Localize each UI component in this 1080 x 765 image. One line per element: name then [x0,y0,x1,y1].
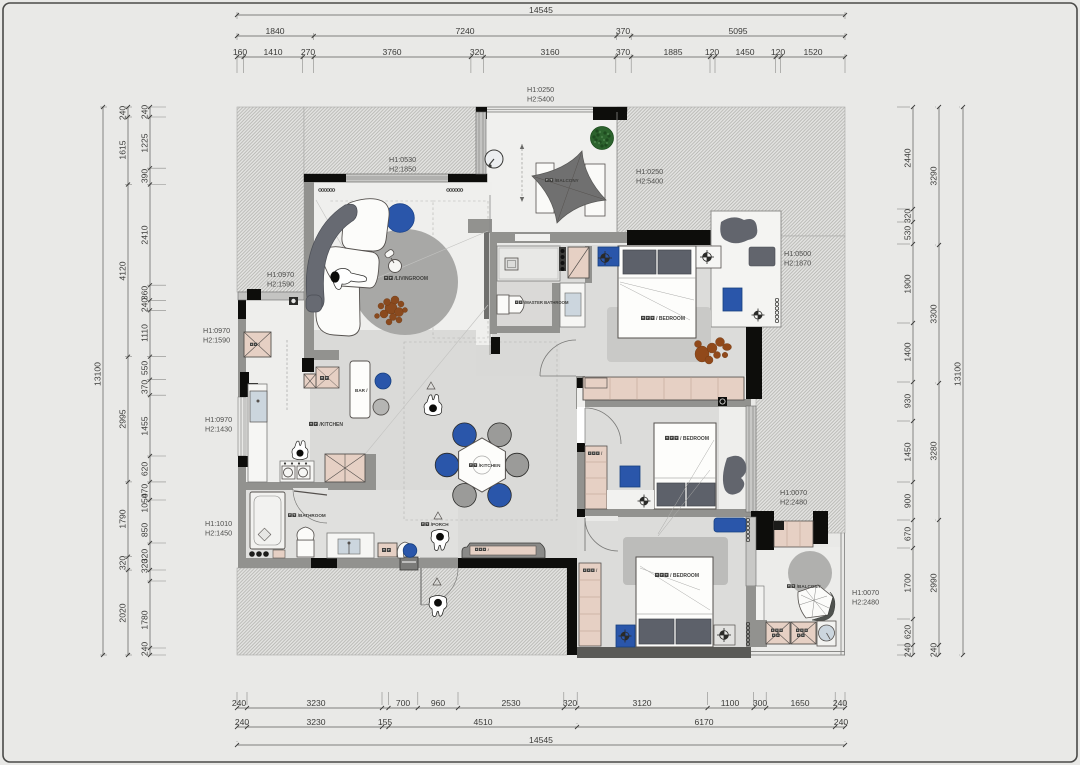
svg-text:1780: 1780 [140,610,150,629]
svg-text:4510: 4510 [473,717,492,727]
svg-text:H1:0970: H1:0970 [203,326,230,335]
svg-text:3230: 3230 [306,717,325,727]
svg-text:550: 550 [140,361,150,376]
svg-text:H2:5400: H2:5400 [527,95,554,104]
svg-text:320: 320 [903,209,913,224]
svg-text:14545: 14545 [529,5,553,15]
svg-text:14545: 14545 [529,735,553,745]
svg-text:155: 155 [378,717,393,727]
svg-text:H1:0250: H1:0250 [636,167,663,176]
svg-text:1790: 1790 [118,509,128,528]
svg-text:1885: 1885 [663,47,682,57]
svg-text:1650: 1650 [790,698,809,708]
svg-text:H2:1430: H2:1430 [205,425,232,434]
svg-text:320: 320 [118,556,128,571]
svg-text:620: 620 [903,625,913,640]
svg-text:H2:1450: H2:1450 [205,529,232,538]
svg-text:/ BEDROOM: / BEDROOM [670,573,699,579]
svg-text:1400: 1400 [903,342,913,361]
svg-text:930: 930 [903,394,913,409]
svg-text:620: 620 [140,462,150,477]
svg-text:1455: 1455 [140,416,150,435]
svg-text:2995: 2995 [118,409,128,428]
svg-text:320: 320 [563,698,578,708]
svg-text:H2:2480: H2:2480 [780,498,807,507]
svg-text:H1:0500: H1:0500 [784,249,811,258]
svg-text:4120: 4120 [118,261,128,280]
svg-text:1450: 1450 [735,47,754,57]
svg-text:320: 320 [140,559,150,574]
svg-text:390: 390 [140,169,150,184]
svg-text:H1:0970: H1:0970 [267,270,294,279]
svg-text:1900: 1900 [903,274,913,293]
svg-text:240: 240 [140,298,150,313]
svg-text:240: 240 [140,642,150,657]
svg-text:1700: 1700 [903,573,913,592]
svg-text:/MASTER BATHROOM: /MASTER BATHROOM [524,300,569,305]
svg-text:1110: 1110 [140,324,150,342]
svg-text:H2:2480: H2:2480 [852,598,879,607]
svg-text:H2:5400: H2:5400 [636,177,663,186]
svg-text:370: 370 [616,26,631,36]
svg-text:2020: 2020 [118,603,128,622]
svg-text:240: 240 [833,698,848,708]
svg-text:H2:1850: H2:1850 [389,165,416,174]
svg-text:700: 700 [396,698,411,708]
svg-text:13100: 13100 [93,362,103,386]
svg-text:13100: 13100 [953,362,963,386]
svg-text:/ BEDROOM: / BEDROOM [656,316,685,322]
svg-text:2530: 2530 [501,698,520,708]
svg-text:H2:1590: H2:1590 [267,280,294,289]
svg-text:120: 120 [705,47,720,57]
svg-text:900: 900 [903,494,913,509]
svg-text:240: 240 [834,717,849,727]
svg-text:960: 960 [431,698,446,708]
svg-text:1520: 1520 [803,47,822,57]
svg-text:670: 670 [903,527,913,542]
svg-text:H1:0530: H1:0530 [389,155,416,164]
svg-text:H2:1870: H2:1870 [784,259,811,268]
svg-text:240: 240 [235,717,250,727]
svg-text:/BATHROOM: /BATHROOM [298,513,326,518]
svg-text:300: 300 [753,698,768,708]
svg-text:/ BEDROOM: / BEDROOM [680,436,709,442]
svg-text:H2:1590: H2:1590 [203,336,230,345]
svg-text:530: 530 [903,226,913,241]
svg-text:1450: 1450 [903,442,913,461]
svg-text:H1:0070: H1:0070 [780,488,807,497]
svg-text:7240: 7240 [455,26,474,36]
svg-text:H1:0970: H1:0970 [205,415,232,424]
svg-text:3120: 3120 [632,698,651,708]
svg-text:/KITCHEN: /KITCHEN [479,463,501,468]
svg-text:H1:1010: H1:1010 [205,519,232,528]
svg-text:/BALCONY: /BALCONY [797,584,821,589]
svg-text:320: 320 [470,47,485,57]
svg-text:BAR /: BAR / [355,388,368,393]
svg-text:370: 370 [616,47,631,57]
svg-text:3280: 3280 [929,441,939,460]
svg-text:120: 120 [771,47,786,57]
svg-text:/PORCH: /PORCH [431,522,450,527]
svg-text:240: 240 [118,106,128,121]
svg-text:1615: 1615 [118,140,128,159]
svg-text:2990: 2990 [929,573,939,592]
svg-text:270: 270 [301,47,316,57]
svg-text:3160: 3160 [540,47,559,57]
svg-text:160: 160 [233,47,248,57]
svg-text:240: 240 [232,698,247,708]
svg-text:H1:0250: H1:0250 [527,85,554,94]
svg-text:850: 850 [140,523,150,538]
svg-text:1225: 1225 [140,133,150,152]
svg-text:1100: 1100 [721,698,740,708]
svg-text:240: 240 [903,643,913,658]
svg-text:/BALCONY: /BALCONY [555,178,579,183]
svg-text:1410: 1410 [263,47,282,57]
svg-text:3300: 3300 [929,304,939,323]
svg-text:240: 240 [140,105,150,120]
svg-text:5095: 5095 [728,26,747,36]
svg-text:3230: 3230 [306,698,325,708]
svg-text:240: 240 [929,643,939,658]
svg-text:1050: 1050 [140,493,150,512]
svg-text:2410: 2410 [140,225,150,244]
svg-text:/KITCHEN: /KITCHEN [319,422,343,428]
svg-text:/LIVINGROOM: /LIVINGROOM [394,276,428,282]
svg-text:6170: 6170 [694,717,713,727]
svg-text:2440: 2440 [903,148,913,167]
svg-text:H1:0070: H1:0070 [852,588,879,597]
svg-text:3760: 3760 [382,47,401,57]
svg-text:3290: 3290 [929,166,939,185]
svg-text:370: 370 [140,380,150,395]
svg-text:1840: 1840 [265,26,284,36]
